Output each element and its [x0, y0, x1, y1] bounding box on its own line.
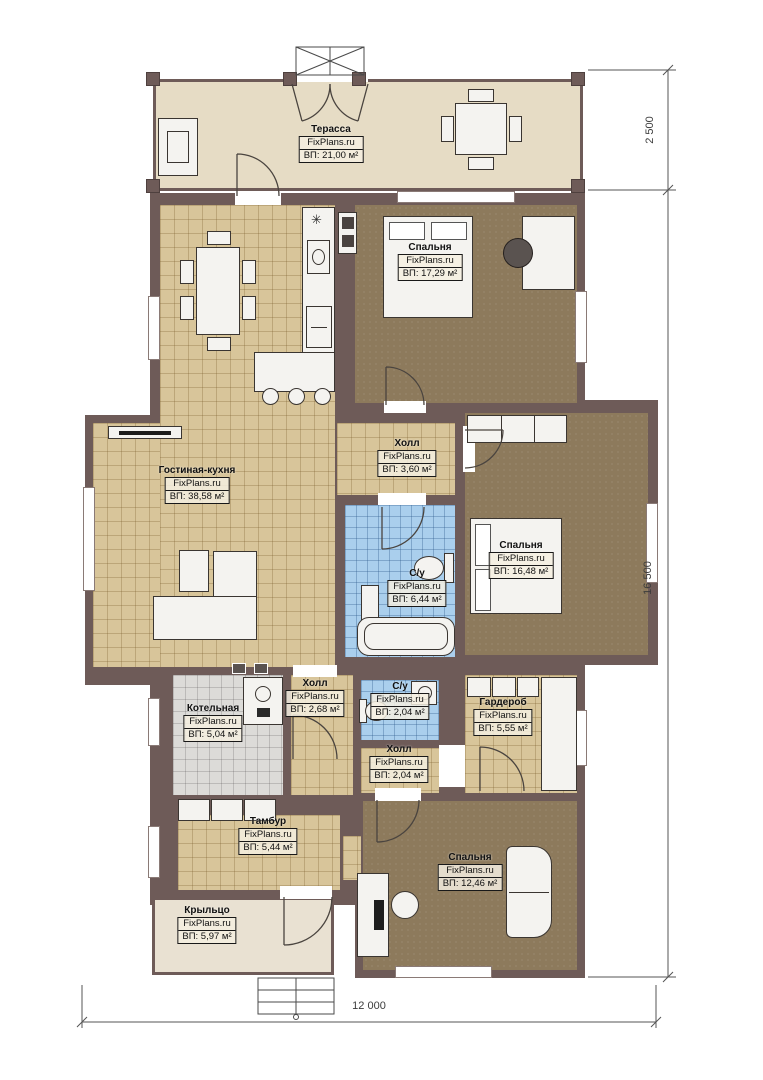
- boiler-unit: [243, 677, 283, 725]
- coffee-table: [179, 550, 209, 592]
- watermark: FixPlans.ru: [300, 137, 363, 150]
- cabinet-row: [467, 415, 567, 443]
- watermark: FixPlans.ru: [474, 710, 531, 723]
- window-boiler-left: [148, 698, 160, 746]
- room-area: ВП: 2,04 м²: [371, 707, 428, 719]
- dimension-tick: [77, 1017, 661, 1027]
- bar-stool: [262, 388, 279, 405]
- dining-chair: [180, 296, 194, 320]
- terrace-pilaster: [571, 72, 585, 86]
- terrace-chair: [441, 116, 454, 142]
- shelf-unit: [467, 677, 491, 697]
- door-gap-bath1: [378, 493, 426, 505]
- sofa-icon: [153, 596, 257, 640]
- window-kitchen-left: [148, 296, 160, 360]
- dimension-tick: [663, 65, 673, 982]
- living-extension-floor: [93, 423, 160, 667]
- terrace-pilaster: [146, 179, 160, 193]
- flue-block: [254, 663, 268, 674]
- window-living-left: [83, 487, 95, 591]
- room-name: Котельная: [183, 703, 242, 715]
- room-label-hall3: Холл FixPlans.ruВП: 2,04 м²: [369, 744, 428, 783]
- terrace-table: [455, 103, 507, 155]
- terrace-chair: [509, 116, 522, 142]
- terrace-pilaster: [146, 72, 160, 86]
- sofa-icon: [213, 551, 257, 598]
- room-area: ВП: 2,68 м²: [286, 704, 343, 716]
- room-label-bath2: С/у FixPlans.ruВП: 2,04 м²: [370, 681, 429, 720]
- closet-unit: [178, 799, 210, 821]
- room-name: Холл: [369, 744, 428, 756]
- watermark: FixPlans.ru: [239, 829, 296, 842]
- room-name: Холл: [285, 678, 344, 690]
- terrace-chair: [468, 157, 494, 170]
- room-label-boiler: Котельная FixPlans.ruВП: 5,04 м²: [183, 703, 242, 742]
- shelf-unit: [517, 677, 539, 697]
- door-gap-porch: [280, 886, 332, 899]
- room-label-hall1: Холл FixPlans.ruВП: 3,60 м²: [377, 438, 436, 477]
- window-bedroom3-bottom: [395, 966, 492, 978]
- floor-plan: ✳: [0, 0, 763, 1080]
- dining-chair: [180, 260, 194, 284]
- room-area: ВП: 3,60 м²: [378, 464, 435, 476]
- room-area: ВП: 21,00 м²: [300, 150, 363, 162]
- closet-unit: [541, 677, 577, 791]
- watermark: FixPlans.ru: [166, 478, 229, 491]
- chair-icon: [503, 238, 533, 268]
- door-gap-bedroom3: [375, 788, 421, 801]
- room-name: Терасса: [299, 124, 364, 136]
- flue-block: [232, 663, 246, 674]
- room-name: Гостиная-кухня: [159, 465, 236, 477]
- stairs-marker: [294, 1015, 299, 1020]
- room-name: С/у: [370, 681, 429, 693]
- terrace-pilaster: [571, 179, 585, 193]
- room-area: ВП: 5,44 м²: [239, 842, 296, 854]
- room-label-hall2: Холл FixPlans.ruВП: 2,68 м²: [285, 678, 344, 717]
- room-name: Спальня: [398, 242, 463, 254]
- dimension-bottom: 12 000: [334, 1000, 404, 1012]
- room-label-living-kitchen: Гостиная-кухня FixPlans.ruВП: 38,58 м²: [159, 465, 236, 504]
- room-area: ВП: 16,48 м²: [490, 566, 553, 578]
- room-name: Крыльцо: [177, 905, 236, 917]
- window-vestibule-left: [148, 826, 160, 878]
- bar-stool: [314, 388, 331, 405]
- bed-icon: [506, 846, 552, 938]
- shelf-unit: [492, 677, 516, 697]
- watermark: FixPlans.ru: [178, 918, 235, 931]
- room-name: Холл: [377, 438, 436, 450]
- dining-chair: [242, 296, 256, 320]
- room-label-terrace: Терасса FixPlans.ruВП: 21,00 м²: [299, 124, 364, 163]
- stairs-icon: [296, 47, 364, 75]
- watermark: FixPlans.ru: [378, 451, 435, 464]
- desk-icon: [357, 873, 389, 957]
- stairs-icon: [258, 978, 334, 1014]
- dining-chair: [242, 260, 256, 284]
- room-label-bedroom3: Спальня FixPlans.ruВП: 12,46 м²: [438, 852, 503, 891]
- terrace-chair: [468, 89, 494, 102]
- room-name: С/у: [387, 568, 446, 580]
- room-label-wardrobe: Гардероб FixPlans.ruВП: 5,55 м²: [473, 697, 532, 736]
- room-area: ВП: 38,58 м²: [166, 491, 229, 503]
- watermark: FixPlans.ru: [388, 581, 445, 594]
- room-area: ВП: 5,97 м²: [178, 931, 235, 943]
- watermark: FixPlans.ru: [490, 553, 553, 566]
- bar-stool: [288, 388, 305, 405]
- kitchen-sink: [307, 240, 330, 274]
- bar-counter: [254, 352, 335, 392]
- chair-icon: [391, 891, 419, 919]
- terrace-pilaster: [352, 72, 366, 86]
- watermark: FixPlans.ru: [439, 865, 502, 878]
- watermark: FixPlans.ru: [370, 757, 427, 770]
- room-name: Гардероб: [473, 697, 532, 709]
- window-bedroom1-right: [575, 291, 587, 363]
- flue-unit: [338, 212, 357, 254]
- dining-table: [196, 247, 240, 335]
- watermark: FixPlans.ru: [286, 691, 343, 704]
- tv-icon: [108, 426, 182, 439]
- dimension-right-side: 16 500: [642, 543, 654, 613]
- room-name: Спальня: [489, 540, 554, 552]
- door-gap-hall2: [293, 665, 337, 677]
- stove-burner-icon: ✳: [311, 212, 322, 228]
- terrace-pilaster: [283, 72, 297, 86]
- room-area: ВП: 17,29 м²: [399, 268, 462, 280]
- room-area: ВП: 12,46 м²: [439, 878, 502, 890]
- dimension-right-top: 2 500: [644, 100, 656, 160]
- room-label-porch: Крыльцо FixPlans.ruВП: 5,97 м²: [177, 905, 236, 944]
- grill-icon: [158, 118, 198, 176]
- room-area: ВП: 5,55 м²: [474, 723, 531, 735]
- room-area: ВП: 2,04 м²: [370, 770, 427, 782]
- door-gap-bedroom1: [384, 401, 426, 413]
- door-gap-wardrobe: [439, 745, 465, 787]
- room-label-vestibule: Тамбур FixPlans.ruВП: 5,44 м²: [238, 816, 297, 855]
- watermark: FixPlans.ru: [399, 255, 462, 268]
- watermark: FixPlans.ru: [371, 694, 428, 707]
- dining-chair: [207, 337, 231, 351]
- door-gap-living-terrace: [235, 191, 281, 205]
- watermark: FixPlans.ru: [184, 716, 241, 729]
- kitchen-fridge: [306, 306, 332, 348]
- room-area: ВП: 6,44 м²: [388, 594, 445, 606]
- room-name: Спальня: [438, 852, 503, 864]
- dining-chair: [207, 231, 231, 245]
- room-area: ВП: 5,04 м²: [184, 729, 241, 741]
- window-bedroom1-top: [397, 191, 515, 203]
- room-label-bedroom1: Спальня FixPlans.ruВП: 17,29 м²: [398, 242, 463, 281]
- bathtub-icon: [357, 617, 455, 656]
- room-label-bath1: С/у FixPlans.ruВП: 6,44 м²: [387, 568, 446, 607]
- room-name: Тамбур: [238, 816, 297, 828]
- room-label-bedroom2: Спальня FixPlans.ruВП: 16,48 м²: [489, 540, 554, 579]
